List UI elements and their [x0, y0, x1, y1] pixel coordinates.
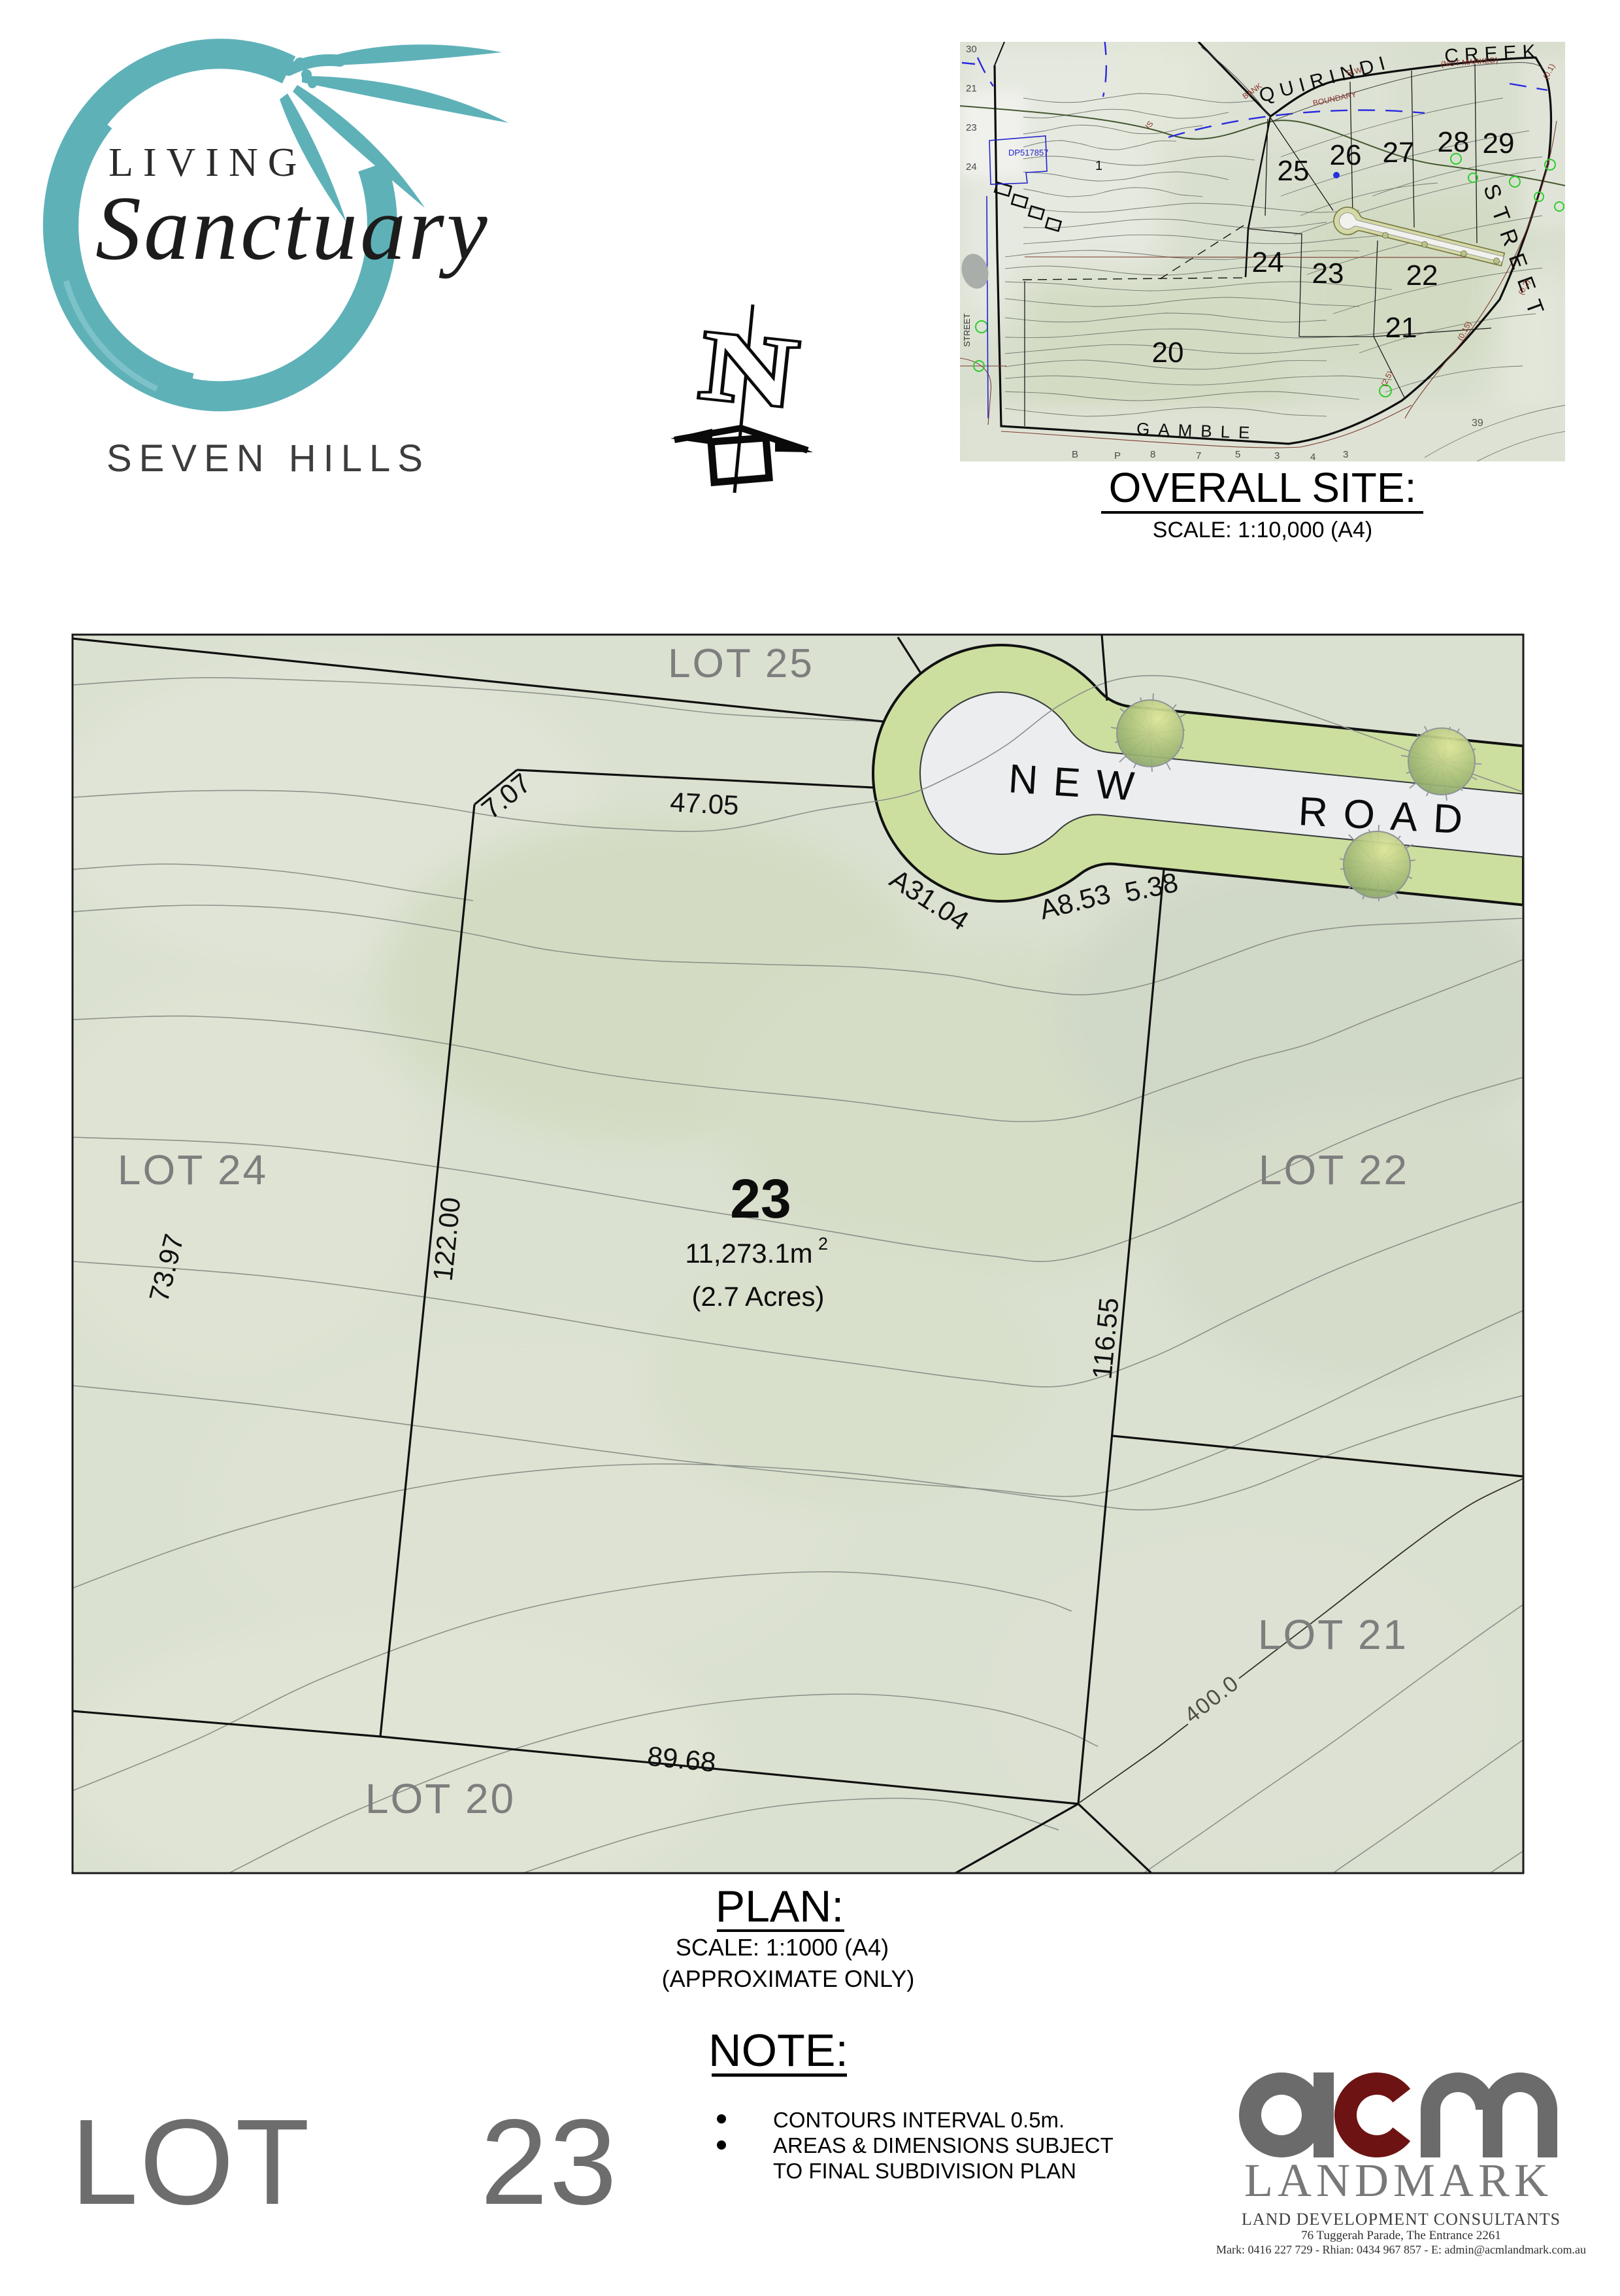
svg-text:21: 21 [1385, 312, 1417, 344]
svg-text:Sanctuary: Sanctuary [95, 178, 490, 279]
svg-text:76 Tuggerah Parade, The Entran: 76 Tuggerah Parade, The Entrance 2261 [1301, 2229, 1501, 2242]
svg-text:NOTE:: NOTE: [708, 2025, 848, 2076]
svg-text:(APPROXIMATE ONLY): (APPROXIMATE ONLY) [662, 1965, 915, 1992]
svg-text:TO FINAL SUBDIVISION PLAN: TO FINAL SUBDIVISION PLAN [773, 2159, 1076, 2183]
svg-text:STREET: STREET [962, 313, 972, 346]
svg-text:LOT 24: LOT 24 [118, 1146, 268, 1193]
svg-text:23: 23 [480, 2095, 618, 2230]
svg-text:20: 20 [1152, 337, 1184, 369]
svg-text:23: 23 [966, 122, 977, 133]
svg-text:89.68: 89.68 [646, 1740, 717, 1778]
svg-text:(2.7 Acres): (2.7 Acres) [691, 1281, 824, 1312]
svg-text:LOT 25: LOT 25 [668, 641, 814, 686]
svg-text:DP517857: DP517857 [1008, 148, 1048, 158]
svg-text:PLAN:: PLAN: [716, 1882, 844, 1931]
svg-text:Mark: 0416 227 729 - Rhian: 04: Mark: 0416 227 729 - Rhian: 0434 967 857… [1216, 2243, 1586, 2256]
svg-text:B: B [1072, 449, 1078, 460]
svg-text:47.05: 47.05 [669, 786, 739, 820]
svg-text:SCALE: 1:1000 (A4): SCALE: 1:1000 (A4) [676, 1934, 889, 1961]
svg-text:3: 3 [1274, 450, 1280, 461]
svg-text:24: 24 [966, 161, 977, 173]
svg-text:29: 29 [1483, 127, 1515, 159]
svg-text:30: 30 [966, 44, 977, 55]
svg-text:LOT 21: LOT 21 [1258, 1611, 1408, 1658]
svg-text:NEW: NEW [1007, 756, 1151, 810]
svg-text:24: 24 [1252, 246, 1284, 278]
svg-text:28: 28 [1438, 126, 1470, 158]
svg-text:22: 22 [1406, 259, 1438, 291]
svg-text:LAND DEVELOPMENT CONSULTANTS: LAND DEVELOPMENT CONSULTANTS [1242, 2210, 1561, 2229]
svg-text:23: 23 [730, 1168, 791, 1229]
svg-text:21: 21 [966, 83, 977, 94]
svg-text:AREAS & DIMENSIONS SUBJECT: AREAS & DIMENSIONS SUBJECT [773, 2133, 1114, 2157]
svg-text:OVERALL SITE:: OVERALL SITE: [1109, 464, 1417, 511]
svg-text:2: 2 [818, 1234, 828, 1254]
svg-text:P: P [1114, 450, 1121, 461]
svg-text:ROAD: ROAD [1297, 789, 1479, 843]
svg-text:11,273.1m: 11,273.1m [685, 1238, 812, 1269]
svg-text:23: 23 [1312, 258, 1344, 290]
svg-text:7: 7 [1196, 450, 1201, 461]
svg-text:4: 4 [1310, 452, 1315, 463]
svg-text:25: 25 [1278, 155, 1310, 187]
svg-text:8: 8 [1150, 449, 1155, 460]
svg-text:LANDMARK: LANDMARK [1244, 2154, 1553, 2206]
svg-text:1: 1 [1095, 159, 1102, 173]
svg-text:5: 5 [1235, 449, 1240, 460]
svg-text:27: 27 [1383, 137, 1415, 169]
svg-text:LOT 20: LOT 20 [365, 1775, 516, 1822]
svg-text:SEVEN HILLS: SEVEN HILLS [107, 437, 430, 480]
svg-text:LOT: LOT [71, 2095, 311, 2230]
svg-text:39: 39 [1472, 418, 1483, 429]
svg-text:3: 3 [1343, 449, 1348, 460]
svg-text:26: 26 [1330, 139, 1362, 171]
svg-text:LOT 22: LOT 22 [1259, 1146, 1409, 1193]
svg-text:SCALE: 1:10,000 (A4): SCALE: 1:10,000 (A4) [1153, 518, 1372, 542]
svg-text:N: N [695, 310, 802, 428]
svg-text:CONTOURS INTERVAL 0.5m.: CONTOURS INTERVAL 0.5m. [773, 2108, 1065, 2132]
